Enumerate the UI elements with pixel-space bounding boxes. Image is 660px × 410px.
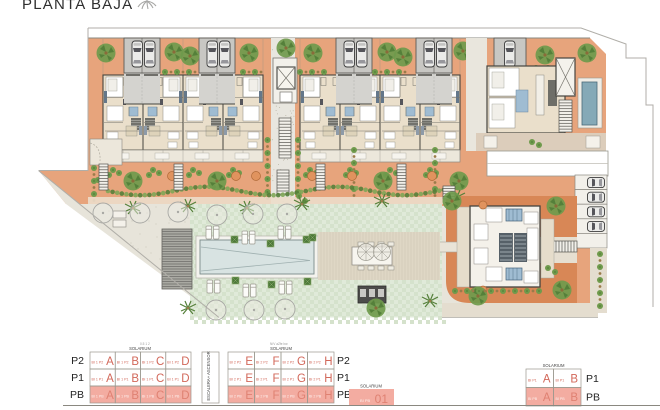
svg-text:F: F — [272, 390, 279, 402]
svg-text:D: D — [181, 373, 189, 385]
svg-text:SOLARIUM: SOLARIUM — [543, 363, 565, 368]
svg-text:PB: PB — [337, 389, 351, 401]
svg-text:SOLARIUM: SOLARIUM — [360, 384, 382, 389]
svg-text:C: C — [156, 390, 164, 402]
svg-text:E: E — [245, 373, 253, 385]
svg-text:A: A — [106, 373, 114, 385]
svg-text:A: A — [543, 392, 551, 404]
svg-text:BI 2 P2: BI 2 P2 — [283, 361, 295, 365]
svg-text:BI 1 P1: BI 1 P1 — [142, 378, 154, 382]
svg-text:H: H — [324, 390, 332, 402]
svg-text:BI P1: BI P1 — [528, 379, 537, 383]
svg-text:E: E — [245, 390, 253, 402]
svg-text:01: 01 — [375, 392, 389, 406]
svg-text:PB: PB — [586, 392, 600, 404]
svg-text:SOLARIUM: SOLARIUM — [129, 346, 151, 351]
svg-text:P2: P2 — [71, 355, 84, 367]
svg-text:BI 2 P1: BI 2 P1 — [283, 378, 295, 382]
svg-text:B: B — [570, 392, 578, 404]
svg-text:BI PB: BI PB — [556, 397, 566, 401]
svg-text:P1: P1 — [586, 373, 599, 385]
svg-text:P1: P1 — [71, 372, 84, 384]
svg-text:BI 2 PB: BI 2 PB — [256, 395, 269, 399]
svg-text:C: C — [156, 373, 164, 385]
svg-text:BI 1 PB: BI 1 PB — [117, 395, 130, 399]
svg-text:PLANTA BAJA: PLANTA BAJA — [22, 0, 133, 13]
svg-text:BI 1 P1: BI 1 P1 — [117, 378, 129, 382]
svg-text:G: G — [297, 373, 306, 385]
svg-text:C: C — [156, 356, 164, 368]
svg-text:SOLARIUM: SOLARIUM — [270, 346, 292, 351]
svg-text:BI 1 P2: BI 1 P2 — [92, 361, 104, 365]
svg-text:G: G — [297, 356, 306, 368]
svg-text:BI 2 P2: BI 2 P2 — [230, 361, 242, 365]
svg-text:A: A — [106, 390, 114, 402]
svg-text:B: B — [570, 374, 578, 386]
svg-text:BI 1 PB: BI 1 PB — [142, 395, 155, 399]
svg-text:BI 2 PB: BI 2 PB — [230, 395, 243, 399]
svg-text:BI PB: BI PB — [528, 397, 538, 401]
svg-text:P2: P2 — [337, 355, 350, 367]
svg-text:BI 2 PB: BI 2 PB — [309, 395, 322, 399]
svg-text:F: F — [272, 373, 279, 385]
svg-text:G: G — [297, 390, 306, 402]
svg-text:B: B — [131, 356, 139, 368]
svg-text:BI 2 P1: BI 2 P1 — [256, 378, 268, 382]
svg-text:E: E — [245, 356, 253, 368]
svg-text:BI 1 P2: BI 1 P2 — [142, 361, 154, 365]
svg-text:B: B — [131, 390, 139, 402]
svg-text:F: F — [272, 356, 279, 368]
svg-text:BI 1 PB: BI 1 PB — [92, 395, 105, 399]
svg-text:A: A — [106, 356, 114, 368]
svg-text:P1: P1 — [337, 372, 350, 384]
svg-text:D: D — [181, 356, 189, 368]
svg-text:BI 1 P1: BI 1 P1 — [167, 378, 179, 382]
svg-text:BI 1 P2: BI 1 P2 — [167, 361, 179, 365]
svg-text:H: H — [324, 373, 332, 385]
svg-text:PB: PB — [70, 389, 84, 401]
svg-text:BI 2 P2: BI 2 P2 — [309, 361, 321, 365]
svg-text:BI 1 P1: BI 1 P1 — [92, 378, 104, 382]
svg-text:D: D — [181, 390, 189, 402]
svg-text:BI 2 P2: BI 2 P2 — [256, 361, 268, 365]
svg-text:A: A — [543, 374, 551, 386]
svg-text:BI PB: BI PB — [360, 398, 371, 403]
svg-text:ESCALERA+ ASCENSOR: ESCALERA+ ASCENSOR — [206, 351, 211, 400]
svg-text:BI 1 P2: BI 1 P2 — [117, 361, 129, 365]
svg-text:BI 2 P1: BI 2 P1 — [230, 378, 242, 382]
svg-text:B: B — [131, 373, 139, 385]
svg-text:H: H — [324, 356, 332, 368]
svg-text:BI 2 PB: BI 2 PB — [283, 395, 296, 399]
svg-text:BI P1: BI P1 — [556, 379, 565, 383]
svg-text:BI 2 P1: BI 2 P1 — [309, 378, 321, 382]
svg-text:BI 1 PB: BI 1 PB — [167, 395, 180, 399]
